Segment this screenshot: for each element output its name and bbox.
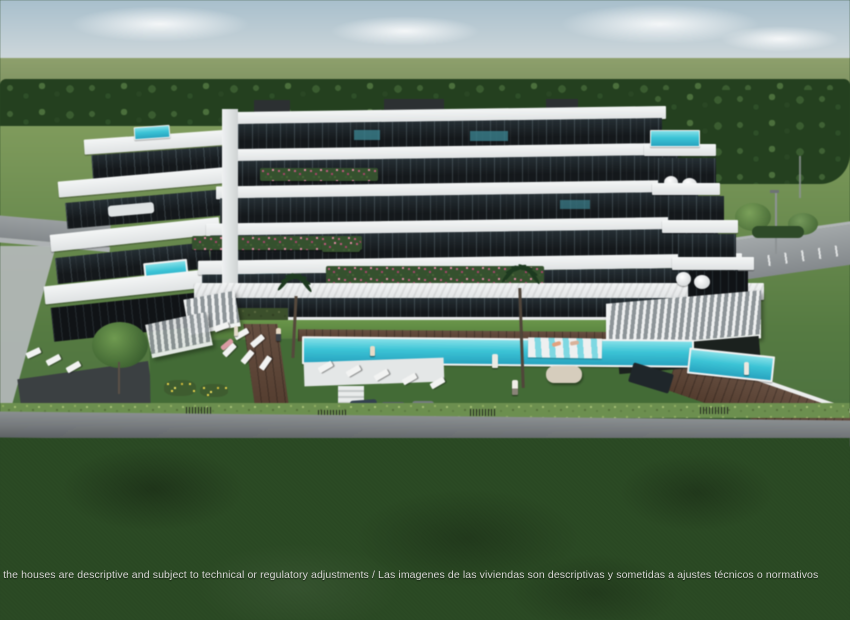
garden-tree-trunk	[118, 362, 120, 394]
flower-boxes	[322, 241, 360, 252]
garden-tree	[92, 322, 148, 368]
flower-boxes	[260, 168, 378, 181]
person	[276, 328, 281, 341]
person	[744, 362, 749, 375]
scenery	[0, 0, 850, 620]
person	[512, 380, 518, 395]
teal-glass-balustrade	[560, 200, 590, 209]
street-lamp-head	[770, 190, 779, 193]
person	[234, 326, 238, 336]
fence-railing	[700, 407, 730, 414]
cloud	[720, 26, 840, 52]
daybed	[546, 366, 582, 383]
pool-water	[135, 126, 170, 139]
pool-water	[651, 131, 699, 146]
street-lamp-pole	[799, 156, 801, 198]
egg-chair	[676, 272, 691, 286]
in-pool-platform	[528, 337, 602, 358]
rooftop-pool	[134, 125, 171, 140]
facade-glass	[668, 196, 724, 222]
cloud	[70, 6, 250, 42]
architectural-render: f the houses are descriptive and subject…	[0, 0, 850, 620]
white-deck	[304, 358, 445, 387]
street-lamp-pole	[775, 192, 777, 254]
rooftop-box	[254, 100, 290, 112]
person	[492, 354, 498, 368]
palm-tree-fronds	[496, 256, 548, 290]
teal-glass-balustrade	[470, 131, 508, 141]
terrace-slab	[652, 183, 720, 195]
rooftop-pool	[650, 130, 700, 147]
teal-glass-balustrade	[354, 130, 380, 140]
corner-pillar	[222, 109, 238, 291]
yellow-flower-bush	[200, 384, 228, 397]
person	[370, 346, 375, 356]
terrace-slab	[662, 220, 738, 233]
palm-tree-fronds	[272, 266, 320, 298]
yellow-flower-bush	[164, 380, 196, 396]
disclaimer-text: f the houses are descriptive and subject…	[0, 567, 850, 583]
egg-chair	[694, 275, 710, 289]
terrace-slab	[672, 257, 754, 270]
roadside-bush	[752, 226, 804, 238]
cloud	[330, 16, 480, 46]
fence-railing	[470, 409, 496, 416]
foreground-lawn	[0, 438, 850, 620]
